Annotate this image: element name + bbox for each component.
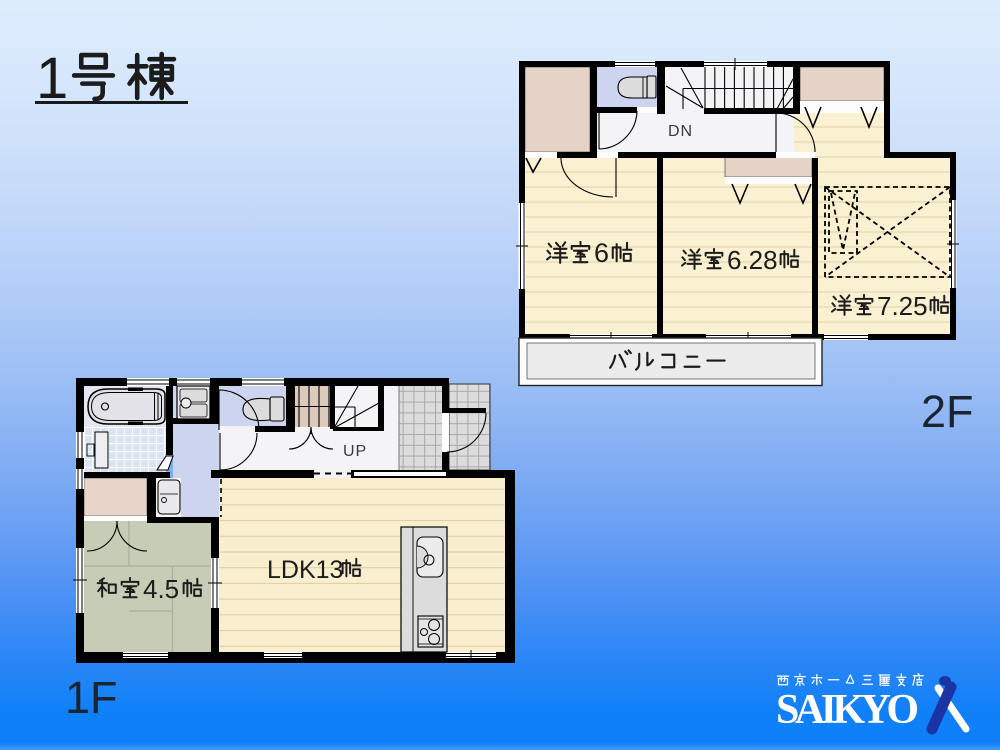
svg-text:6: 6	[594, 238, 609, 268]
svg-text:4.5: 4.5	[143, 574, 179, 604]
svg-text:UP: UP	[343, 443, 367, 460]
svg-text:2F: 2F	[921, 386, 974, 437]
svg-text:DN: DN	[668, 123, 693, 140]
svg-text:7.25: 7.25	[877, 291, 928, 321]
svg-text:1F: 1F	[65, 672, 118, 723]
svg-text:SAIKYO: SAIKYO	[776, 687, 919, 733]
svg-text:LDK13: LDK13	[267, 556, 343, 584]
svg-text:6.28: 6.28	[727, 245, 778, 275]
